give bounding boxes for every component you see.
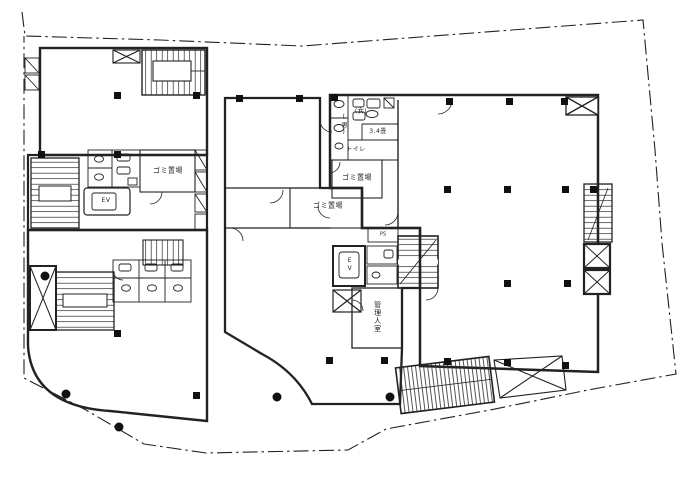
columns bbox=[38, 92, 597, 432]
west-closets bbox=[25, 58, 39, 90]
stair-right-edge bbox=[584, 184, 612, 242]
garbage-room-right-label: ゴミ置場 bbox=[342, 174, 372, 181]
pipe-space-label: PS bbox=[380, 232, 386, 237]
stair-lower-left-wing bbox=[56, 272, 114, 330]
shaft-x-top-right bbox=[566, 97, 598, 115]
site-boundary bbox=[22, 12, 676, 453]
left-wing bbox=[25, 48, 207, 421]
garbage-room-middle-label: ゴミ置場 bbox=[313, 202, 343, 209]
elevator-shafts-right bbox=[584, 244, 610, 294]
mens-label: (男) bbox=[340, 114, 346, 137]
stair-stub-lower bbox=[143, 240, 183, 265]
floor-plan-drawing bbox=[0, 0, 699, 486]
pipe-shafts-left-wing bbox=[195, 150, 207, 230]
utility-boxes bbox=[367, 246, 397, 284]
stair-upper-left-wing bbox=[142, 50, 205, 95]
right-wing bbox=[330, 95, 612, 372]
stair-mid-left-wing bbox=[31, 158, 79, 228]
stair-center bbox=[398, 236, 438, 288]
womens-label: (女) bbox=[355, 109, 367, 115]
elevator-center-label: EV bbox=[346, 257, 352, 273]
floor-plan: ゴミ置場 ゴミ置場 ゴミ置場 トイレ (男) (女) 3.4畳 管理人室 EV … bbox=[0, 0, 699, 486]
shaft-x-upper bbox=[113, 50, 140, 63]
room-size-label: 3.4畳 bbox=[369, 129, 387, 135]
wc-lower-left-wing bbox=[113, 260, 191, 302]
managers-room-label: 管理人室 bbox=[373, 301, 380, 333]
elevator-left-label: EV bbox=[102, 198, 111, 204]
toilet-label: トイレ bbox=[346, 147, 366, 153]
garbage-room-left-label: ゴミ置場 bbox=[153, 167, 183, 174]
exterior-stair bbox=[396, 356, 495, 413]
